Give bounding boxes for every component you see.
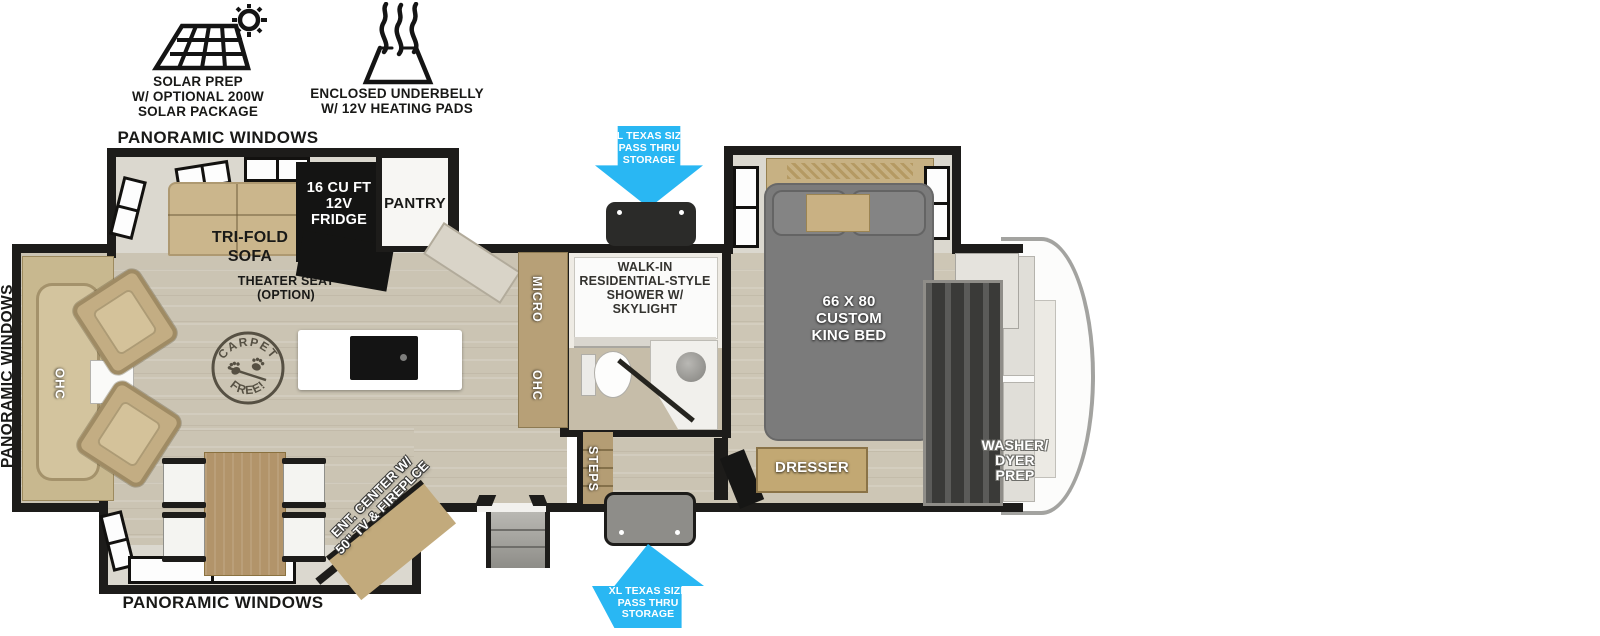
pass-thru-label-bottom: XL TEXAS SIZE PASS THRU STORAGE [609, 586, 688, 628]
underbelly-label: ENCLOSED UNDERBELLY W/ 12V HEATING PADS [295, 86, 499, 116]
fridge-label: 16 CU FT 12V FRIDGE [298, 180, 380, 228]
washer-dryer-prep-label: WASHER/ DYER PREP [962, 438, 1068, 483]
cooktop-knob [400, 354, 407, 361]
bed-slide-window-left [733, 166, 759, 248]
rear-ohc-label: OHC [52, 346, 67, 422]
dinette-chair [164, 514, 204, 560]
bathroom-sink [676, 352, 706, 382]
pantry-label: PANTRY [376, 196, 454, 213]
dinette-table [204, 452, 286, 576]
sofa-slide-wall-left [107, 148, 116, 258]
solar-panel-icon [148, 4, 278, 76]
kitchen-ohc-label: OHC [530, 354, 544, 416]
dinette-chair [164, 460, 204, 506]
dinette-chair [284, 460, 324, 506]
sofa-label: TRI-FOLD SOFA [192, 228, 308, 266]
storage-door-top [606, 202, 696, 246]
micro-label: MICRO [530, 262, 544, 336]
heated-underbelly-icon [352, 2, 444, 86]
entry-steps [486, 512, 550, 568]
kitchen-island [298, 330, 462, 390]
cooktop [350, 336, 418, 380]
storage-door-latch [617, 210, 622, 215]
stamp-top-text: CARPET [215, 335, 281, 362]
stamp-bottom-text: FREE! [228, 378, 269, 398]
bed-slide-wall-top [724, 146, 961, 155]
bed-runner [806, 194, 870, 232]
dresser-label: DRESSER [756, 460, 868, 477]
steps-label: STEPS [586, 434, 600, 504]
main-wall-top-rear [12, 244, 115, 253]
storage-door-latch [619, 530, 624, 535]
pass-thru-arrow-top: XL TEXAS SIZE PASS THRU STORAGE [595, 126, 703, 208]
carpet-free-stamp: CARPET FREE! [209, 329, 287, 407]
panoramic-windows-label-top: PANORAMIC WINDOWS [113, 128, 323, 147]
pass-thru-arrow-bottom: XL TEXAS SIZE PASS THRU STORAGE [592, 544, 704, 628]
headboard-trim [787, 163, 913, 179]
storage-door-latch [675, 530, 680, 535]
svg-text:CARPET: CARPET [215, 335, 281, 362]
storage-door-bottom [604, 492, 696, 546]
panoramic-windows-label-bottom: PANORAMIC WINDOWS [118, 593, 328, 612]
main-wall-top-front [952, 244, 1023, 253]
svg-text:FREE!: FREE! [228, 378, 269, 398]
solar-prep-label: SOLAR PREP W/ OPTIONAL 200W SOLAR PACKAG… [92, 74, 304, 119]
shower-label: WALK-IN RESIDENTIAL-STYLE SHOWER W/ SKYL… [571, 260, 719, 316]
king-bed-label: 66 X 80 CUSTOM KING BED [779, 293, 919, 344]
bed-slide-wall-right [952, 146, 961, 254]
main-wall-bottom-rear [12, 503, 107, 512]
storage-door-latch [679, 210, 684, 215]
bed-slide-wall-left [724, 146, 733, 254]
pass-thru-label-top: XL TEXAS SIZE PASS THRU STORAGE [610, 126, 689, 166]
floorplan-canvas: SOLAR PREP W/ OPTIONAL 200W SOLAR PACKAG… [0, 0, 1600, 636]
bathroom-wall-right [722, 244, 731, 438]
main-wall-rear [12, 244, 21, 512]
